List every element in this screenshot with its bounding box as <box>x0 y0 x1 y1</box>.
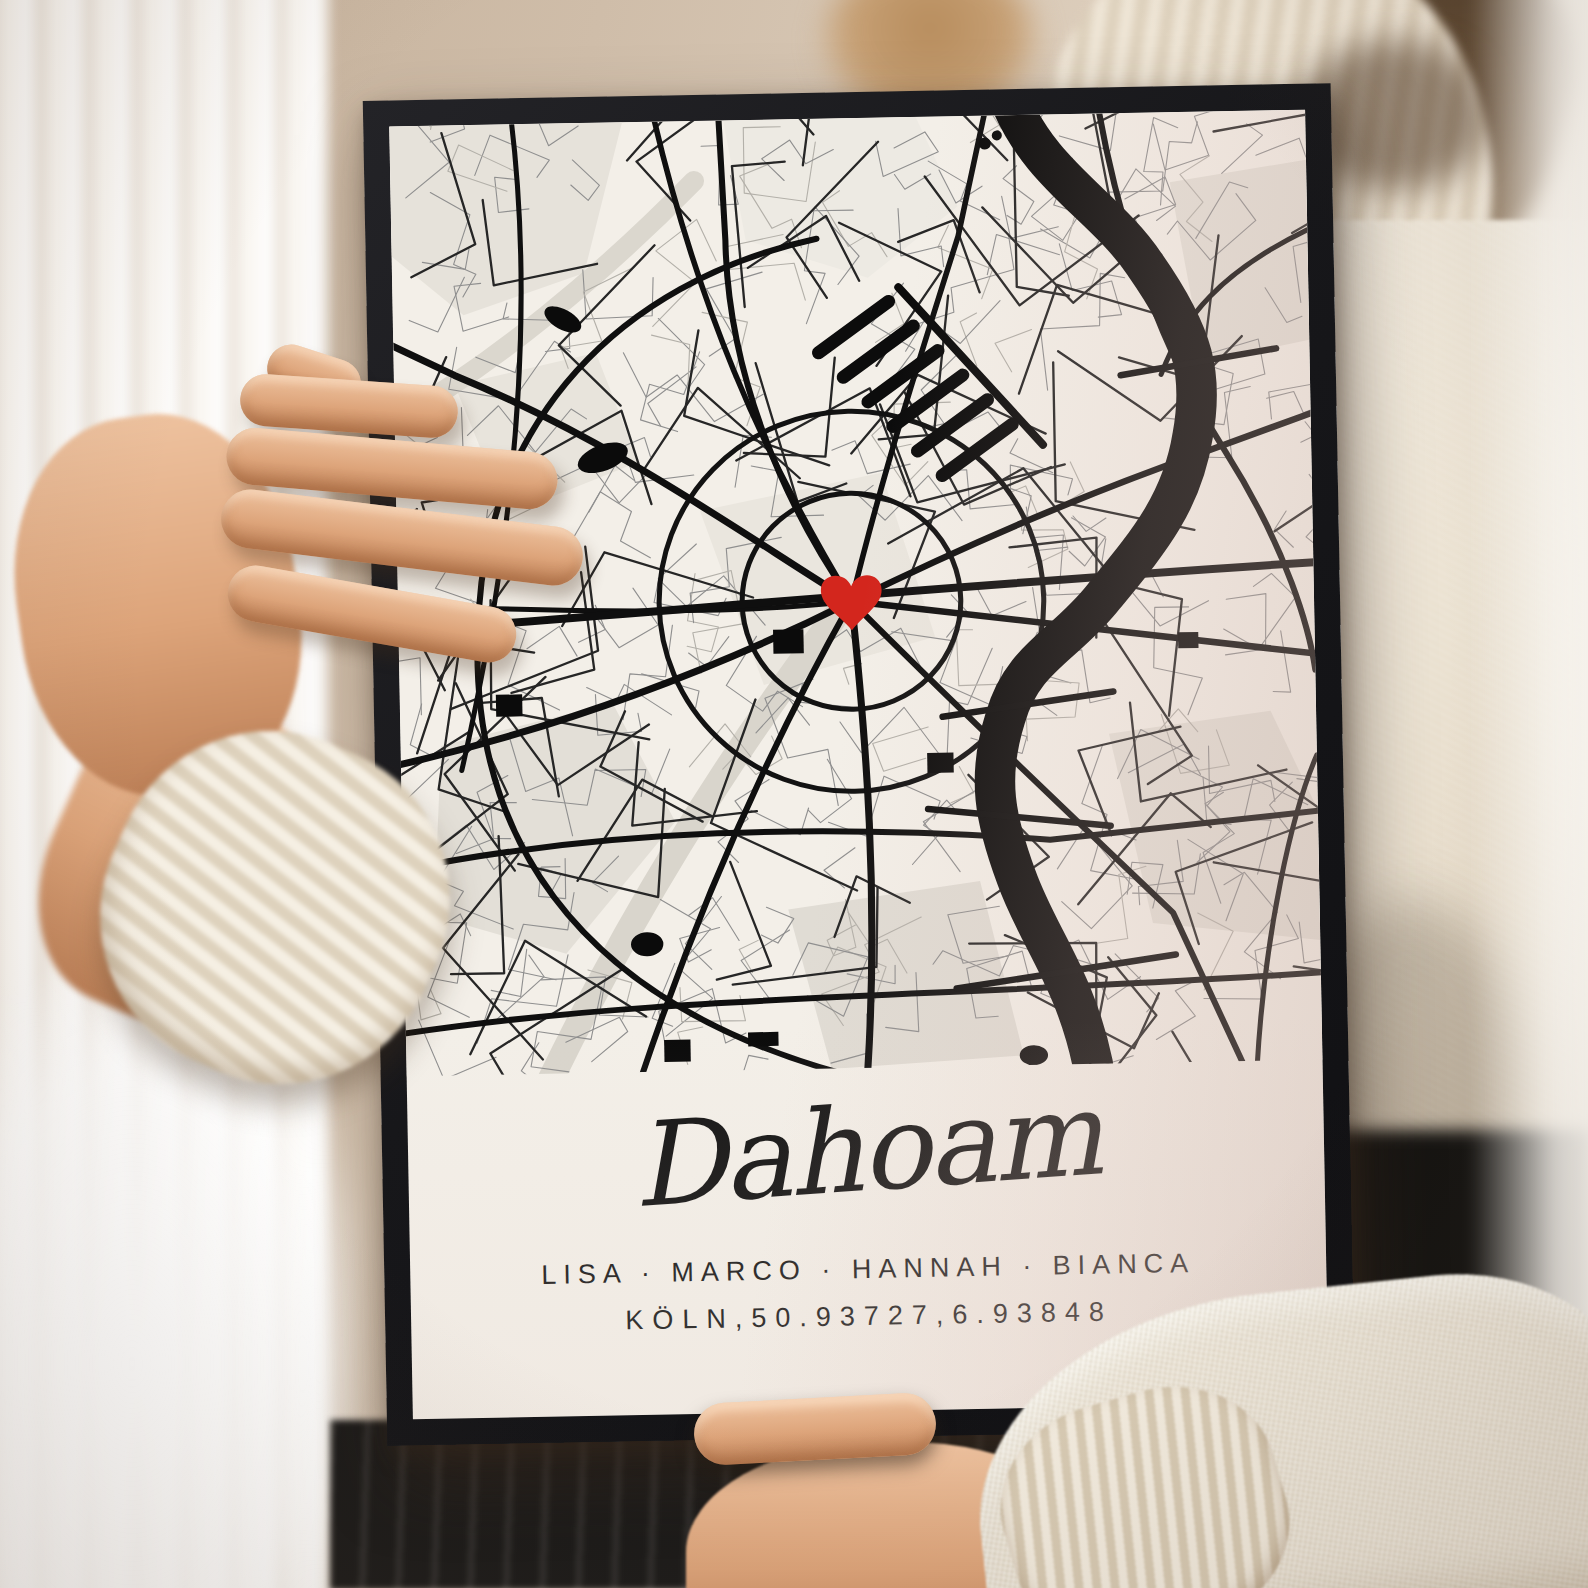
city-map <box>389 110 1322 1077</box>
poster-coordinates: KÖLN,50.93727,6.93848 <box>625 1297 1113 1337</box>
framed-map-poster: Dahoam LISA · MARCO · HANNAH · BIANCA KÖ… <box>363 83 1355 1446</box>
photo-scene: Dahoam LISA · MARCO · HANNAH · BIANCA KÖ… <box>0 0 1588 1588</box>
right-thumb <box>693 1392 938 1467</box>
poster-paper: Dahoam LISA · MARCO · HANNAH · BIANCA KÖ… <box>389 110 1329 1420</box>
poster-names: LISA · MARCO · HANNAH · BIANCA <box>541 1248 1196 1291</box>
poster-title: Dahoam <box>629 1076 1104 1225</box>
